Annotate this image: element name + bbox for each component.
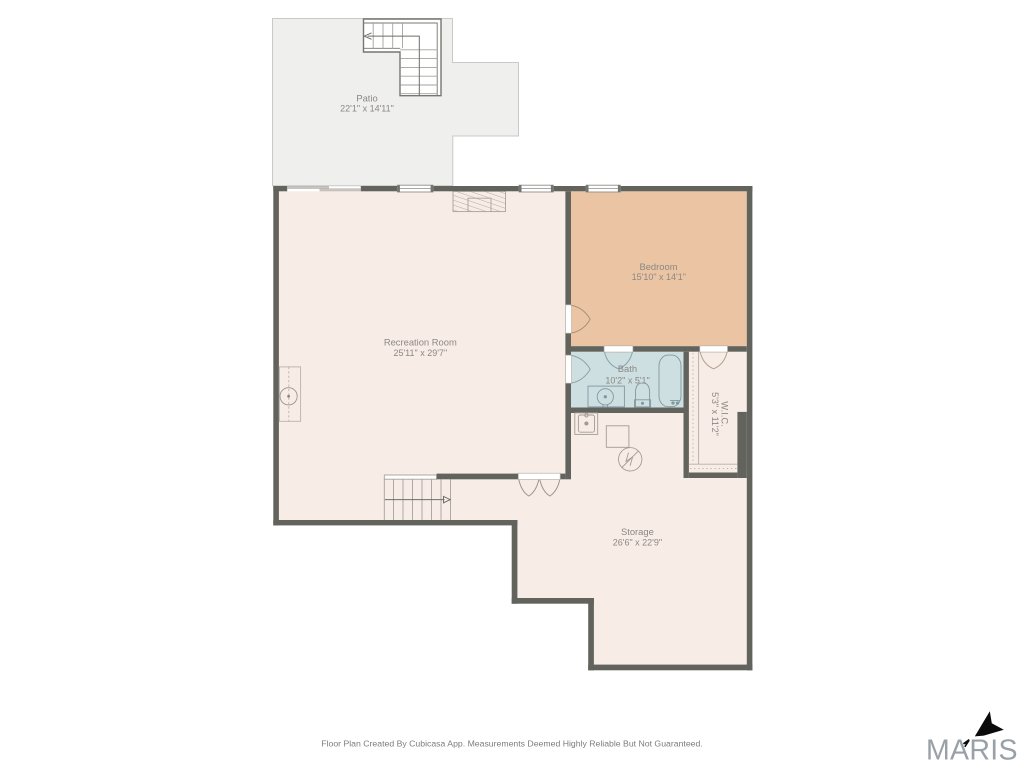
svg-text:Bath: Bath bbox=[618, 363, 637, 374]
svg-text:5'3" x 11'2": 5'3" x 11'2" bbox=[710, 392, 720, 436]
svg-text:25'11" x 29'7": 25'11" x 29'7" bbox=[393, 348, 447, 358]
svg-text:MARIS: MARIS bbox=[926, 735, 1018, 767]
svg-text:26'6" x 22'9": 26'6" x 22'9" bbox=[613, 538, 662, 548]
svg-text:Bedroom: Bedroom bbox=[639, 261, 677, 272]
svg-text:W.I.C.: W.I.C. bbox=[720, 401, 731, 427]
svg-text:Storage: Storage bbox=[621, 526, 654, 537]
svg-text:Recreation Room: Recreation Room bbox=[384, 336, 457, 347]
svg-text:Floor Plan Created By Cubicasa: Floor Plan Created By Cubicasa App. Meas… bbox=[321, 738, 702, 748]
svg-text:Patio: Patio bbox=[356, 92, 377, 103]
svg-text:22'1" x 14'11": 22'1" x 14'11" bbox=[340, 103, 394, 113]
svg-text:15'10" x 14'1": 15'10" x 14'1" bbox=[632, 272, 686, 282]
svg-text:10'2" x 5'1": 10'2" x 5'1" bbox=[605, 375, 649, 385]
